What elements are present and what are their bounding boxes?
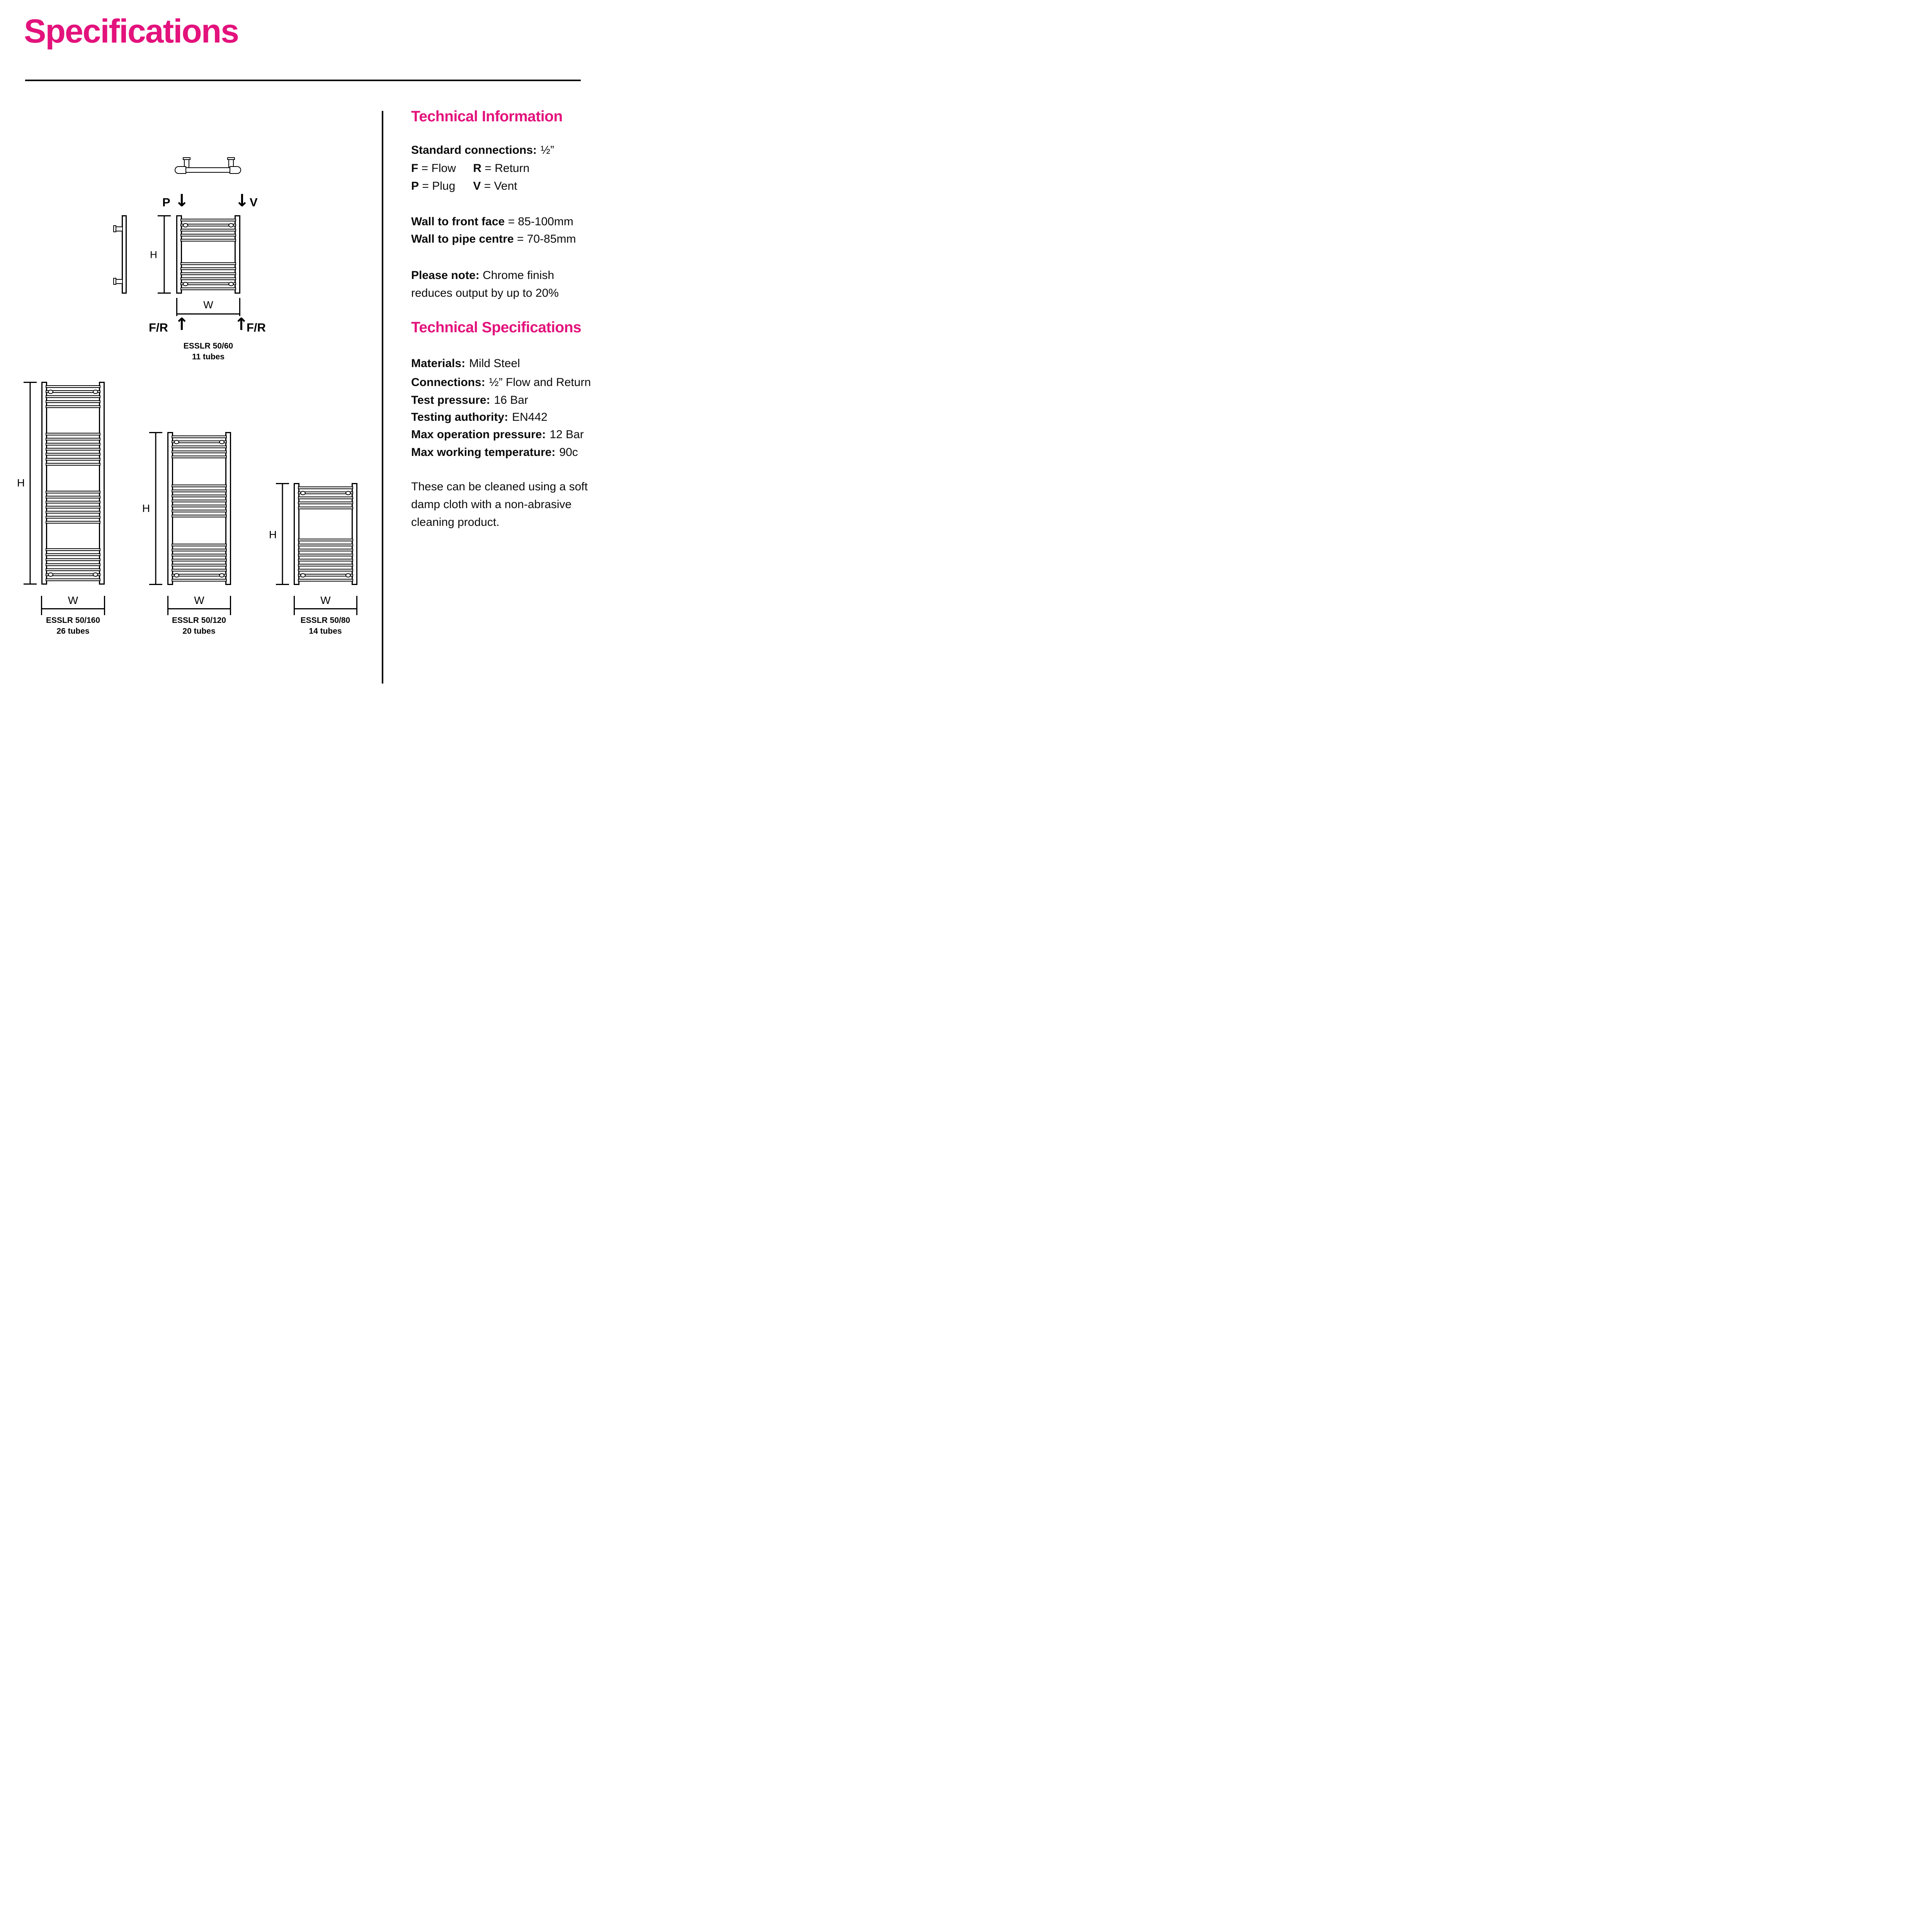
height-label: H — [150, 249, 157, 261]
radiator-rungs — [172, 435, 227, 582]
spec-materials: Materials:Mild Steel — [411, 357, 520, 370]
chrome-note-line-2: reduces output by up to 20% — [411, 287, 559, 300]
rung-cluster — [46, 491, 100, 524]
legend-flow: F = Flow — [411, 162, 470, 175]
wall-to-front-face-value: = 85-100mm — [508, 215, 573, 228]
dimension-line — [167, 608, 231, 609]
page-title: Specifications — [24, 14, 238, 49]
dimension-tick — [158, 215, 171, 216]
standard-connections-value: ½” — [541, 144, 554, 156]
legend-vent: V = Vent — [473, 180, 517, 192]
wall-to-front-face-label: Wall to front face — [411, 215, 505, 228]
radiator-rung — [298, 544, 353, 546]
dimension-tick — [24, 583, 37, 585]
model-caption-esslr-50-80: ESSLR 50/80 14 tubes — [267, 615, 383, 637]
radiator-rung — [180, 219, 236, 221]
legend-vent-key: V — [473, 180, 481, 192]
spec-max-working-temperature-value: 90c — [559, 446, 578, 459]
model-caption-esslr-50-60: ESSLR 50/60 11 tubes — [150, 341, 266, 362]
height-dimension-esslr-50-80 — [276, 483, 289, 585]
dimension-line — [30, 382, 31, 585]
rung-cluster — [172, 485, 227, 517]
radiator-rung — [46, 521, 100, 524]
radiator-rung — [172, 554, 227, 556]
radiator-rung — [172, 579, 227, 582]
spec-max-operation-pressure-value: 12 Bar — [549, 428, 583, 441]
model-caption-esslr-50-120: ESSLR 50/120 20 tubes — [141, 615, 257, 637]
spec-max-working-temperature: Max working temperature:90c — [411, 446, 578, 459]
radiator-rung — [46, 400, 100, 403]
legend-row-plug-vent: P = Plug V = Vent — [411, 180, 517, 193]
dimension-line — [41, 608, 105, 609]
radiator-rung — [180, 287, 236, 290]
radiator-rung — [172, 549, 227, 551]
title-rule — [25, 80, 581, 81]
dimension-line — [294, 608, 357, 609]
width-label: W — [167, 594, 231, 607]
radiator-rung — [172, 446, 227, 448]
radiator-rung — [180, 224, 236, 226]
radiator-rung — [172, 569, 227, 571]
rung-cluster — [298, 539, 353, 582]
legend-return: R = Return — [473, 162, 529, 175]
up-arrow-icon: ↑ — [175, 316, 189, 333]
model-name: ESSLR 50/120 — [141, 615, 257, 626]
height-label: H — [142, 502, 150, 515]
legend-return-rest: = Return — [485, 162, 529, 175]
dimension-line — [155, 432, 156, 585]
radiator-rung — [172, 505, 227, 507]
radiator-rung — [298, 502, 353, 504]
vent-port-icon — [228, 282, 234, 286]
dimension-tick — [276, 584, 289, 585]
vent-port-icon — [183, 223, 188, 227]
radiator-rung — [46, 506, 100, 509]
radiator-rung — [180, 267, 236, 270]
vent-port-icon — [48, 389, 53, 394]
cleaning-note-line-1: These can be cleaned using a soft — [411, 480, 588, 493]
chrome-note-line-1: Please note: Chrome finish — [411, 269, 554, 282]
legend-return-key: R — [473, 162, 481, 175]
plan-view-end-cap-left — [175, 166, 186, 174]
dimension-line — [164, 215, 165, 294]
radiator-rung — [46, 438, 100, 440]
spec-materials-value: Mild Steel — [469, 357, 520, 370]
radiator-rungs — [180, 219, 236, 290]
radiator-rung — [180, 229, 236, 231]
spec-max-operation-pressure-label: Max operation pressure: — [411, 428, 546, 441]
model-tube-count: 26 tubes — [15, 626, 131, 637]
legend-row-flow-return: F = Flow R = Return — [411, 162, 529, 175]
radiator-rung — [180, 272, 236, 275]
legend-plug-rest: = Plug — [422, 180, 455, 192]
vent-port-icon — [219, 440, 224, 444]
vent-port-icon — [183, 282, 188, 286]
wall-to-pipe-centre-value: = 70-85mm — [517, 233, 576, 245]
technical-specifications-heading: Technical Specifications — [411, 319, 581, 336]
height-dimension-esslr-50-160 — [24, 382, 37, 585]
spec-connections-label: Connections: — [411, 376, 485, 389]
radiator-rung — [46, 385, 100, 388]
spec-testing-authority: Testing authority:EN442 — [411, 411, 548, 424]
radiator-rung — [172, 490, 227, 492]
radiator-rung — [298, 559, 353, 561]
radiator-rung — [46, 558, 100, 561]
radiator-rung — [172, 574, 227, 577]
dimension-tick — [149, 432, 162, 433]
rung-cluster — [180, 219, 236, 241]
legend-vent-rest: = Vent — [484, 180, 517, 192]
radiator-rung — [46, 568, 100, 571]
radiator-rung — [46, 395, 100, 398]
rung-cluster — [180, 262, 236, 290]
radiator-rung — [46, 405, 100, 408]
standard-connections-label: Standard connections: — [411, 144, 537, 156]
rung-cluster — [46, 385, 100, 408]
technical-information-heading: Technical Information — [411, 108, 563, 125]
wall-to-front-face-line: Wall to front face = 85-100mm — [411, 215, 573, 228]
radiator-rung — [180, 234, 236, 236]
rung-cluster — [46, 433, 100, 466]
height-dimension-top-diagram — [158, 215, 171, 294]
vent-port-icon — [93, 389, 98, 394]
vent-port-icon — [48, 573, 53, 577]
radiator-rung — [46, 491, 100, 493]
spec-testing-authority-value: EN442 — [512, 411, 548, 423]
radiator-rung — [46, 578, 100, 581]
dimension-line — [282, 483, 283, 585]
model-name: ESSLR 50/160 — [15, 615, 131, 626]
radiator-rung — [298, 549, 353, 551]
radiator-rung — [46, 511, 100, 514]
dimension-tick — [158, 293, 171, 294]
width-label: W — [294, 594, 357, 607]
model-tube-count: 14 tubes — [267, 626, 383, 637]
chrome-note-text-1: Chrome finish — [483, 269, 554, 282]
spec-max-operation-pressure: Max operation pressure:12 Bar — [411, 428, 584, 441]
radiator-rungs — [298, 486, 353, 582]
width-label: W — [176, 299, 240, 311]
radiator-rung — [172, 515, 227, 517]
radiator-rung — [46, 448, 100, 451]
cleaning-note-line-2: damp cloth with a non-abrasive — [411, 498, 571, 511]
down-arrow-icon: ↓ — [175, 192, 189, 209]
rung-cluster — [46, 548, 100, 581]
column-divider-line — [382, 111, 383, 684]
radiator-diagram-esslr-50-120 — [167, 432, 231, 585]
radiator-rung — [46, 496, 100, 498]
radiator-diagram-esslr-50-60 — [176, 215, 240, 294]
spec-test-pressure-label: Test pressure: — [411, 394, 490, 406]
radiator-rung — [46, 390, 100, 393]
model-tube-count: 20 tubes — [141, 626, 257, 637]
radiator-rung — [298, 569, 353, 571]
vent-port-icon — [93, 573, 98, 577]
radiator-rung — [172, 485, 227, 487]
height-dimension-esslr-50-120 — [149, 432, 162, 585]
radiator-rung — [172, 500, 227, 502]
vent-port-icon — [174, 440, 179, 444]
radiator-rung — [298, 507, 353, 509]
radiator-rung — [172, 435, 227, 438]
radiator-rung — [172, 440, 227, 443]
chrome-note-label: Please note: — [411, 269, 480, 282]
spec-test-pressure-value: 16 Bar — [494, 394, 528, 406]
radiator-rung — [298, 492, 353, 494]
model-name: ESSLR 50/80 — [267, 615, 383, 626]
radiator-rung — [172, 495, 227, 497]
dimension-tick — [24, 382, 37, 383]
radiator-rung — [46, 553, 100, 556]
radiator-rung — [180, 262, 236, 265]
radiator-rung — [46, 516, 100, 519]
side-view-bracket-top — [116, 226, 123, 231]
radiator-rung — [180, 239, 236, 241]
radiator-rung — [46, 443, 100, 446]
radiator-rung — [298, 539, 353, 541]
side-view-bracket-bottom — [116, 279, 123, 284]
radiator-rung — [172, 451, 227, 453]
rung-cluster — [172, 544, 227, 582]
radiator-rung — [172, 544, 227, 546]
vent-connection-label: V — [250, 196, 258, 209]
plan-view-end-cap-right — [230, 166, 241, 174]
vent-port-icon — [300, 491, 306, 495]
down-arrow-icon: ↓ — [235, 192, 249, 209]
cleaning-note-line-3: cleaning product. — [411, 516, 500, 529]
radiator-rung — [298, 497, 353, 499]
flow-return-label-right: F/R — [247, 321, 266, 335]
spec-sheet-page: Specifications Technical Information Sta… — [0, 0, 609, 701]
radiator-rung — [46, 573, 100, 576]
legend-plug-key: P — [411, 180, 419, 192]
spec-testing-authority-label: Testing authority: — [411, 411, 508, 423]
radiator-rung — [46, 463, 100, 466]
vent-port-icon — [228, 223, 234, 227]
radiator-rung — [46, 563, 100, 566]
radiator-rung — [46, 501, 100, 503]
side-view-bracket-cap-bottom — [113, 278, 116, 285]
flow-return-label-left: F/R — [149, 321, 168, 335]
plug-connection-label: P — [162, 196, 170, 209]
radiator-rung — [298, 554, 353, 556]
legend-flow-rest: = Flow — [422, 162, 456, 175]
side-view-bracket-cap-top — [113, 225, 116, 232]
radiator-rung — [172, 559, 227, 561]
standard-connections-line: Standard connections:½” — [411, 144, 554, 157]
legend-plug: P = Plug — [411, 180, 470, 193]
model-tube-count: 11 tubes — [150, 352, 266, 362]
vent-port-icon — [174, 573, 179, 577]
rung-cluster — [298, 486, 353, 509]
wall-to-pipe-centre-label: Wall to pipe centre — [411, 233, 514, 245]
spec-connections: Connections:½” Flow and Return — [411, 376, 591, 389]
legend-flow-key: F — [411, 162, 418, 175]
radiator-rung — [46, 453, 100, 456]
plan-view-bar — [179, 167, 238, 173]
vent-port-icon — [300, 573, 306, 577]
model-name: ESSLR 50/60 — [150, 341, 266, 352]
radiator-rung — [46, 458, 100, 461]
radiator-rung — [172, 564, 227, 566]
vent-port-icon — [345, 573, 351, 577]
dimension-tick — [276, 483, 289, 484]
spec-materials-label: Materials: — [411, 357, 465, 370]
dimension-tick — [149, 584, 162, 585]
rung-cluster — [172, 435, 227, 458]
spec-test-pressure: Test pressure:16 Bar — [411, 394, 528, 407]
radiator-rung — [298, 574, 353, 577]
spec-max-working-temperature-label: Max working temperature: — [411, 446, 555, 459]
spec-connections-value: ½” Flow and Return — [489, 376, 591, 389]
radiator-rung — [172, 510, 227, 512]
vent-port-icon — [345, 491, 351, 495]
radiator-rung — [180, 282, 236, 285]
radiator-rung — [46, 433, 100, 435]
width-label: W — [41, 594, 105, 607]
radiator-rung — [172, 456, 227, 458]
height-label: H — [17, 477, 25, 489]
model-caption-esslr-50-160: ESSLR 50/160 26 tubes — [15, 615, 131, 637]
radiator-rung — [298, 486, 353, 489]
radiator-rung — [298, 564, 353, 566]
radiator-diagram-esslr-50-80 — [294, 483, 357, 585]
wall-to-pipe-centre-line: Wall to pipe centre = 70-85mm — [411, 233, 576, 246]
radiator-rung — [180, 277, 236, 280]
radiator-diagram-esslr-50-160 — [41, 382, 105, 585]
radiator-rungs — [46, 385, 100, 581]
height-label: H — [269, 529, 277, 541]
radiator-rung — [46, 548, 100, 551]
vent-port-icon — [219, 573, 224, 577]
radiator-rung — [298, 579, 353, 582]
